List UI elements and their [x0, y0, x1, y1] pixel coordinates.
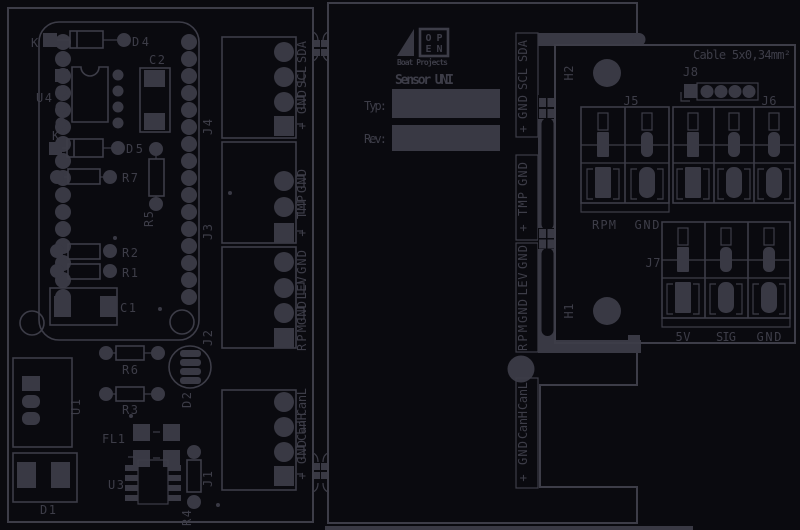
silk-ref-j4: J4 [201, 119, 215, 135]
logo-triangle-icon [397, 29, 414, 56]
resistor-r6: R6 [99, 346, 165, 377]
board-title: Sensor UNI [395, 73, 454, 88]
pin-label: SCL [295, 66, 309, 88]
rev-label: Rev: [364, 132, 387, 146]
silk-ref-j8: J8 [683, 65, 698, 79]
edge-label: TMP [516, 192, 530, 216]
connector-j4: J4 SDA SCL GND + [201, 37, 309, 138]
edge-label: + [516, 474, 530, 481]
pin-label: SDA [295, 40, 309, 63]
typ-label: Typ: [364, 99, 387, 113]
silk-ref-c2: C2 [149, 53, 165, 67]
silk-ref-d5: D5 [126, 142, 143, 156]
silk-ref-h1: H1 [562, 304, 576, 319]
pcb-panel: K D4 C2 U4 K [0, 0, 800, 530]
pin-label: GND [295, 169, 309, 193]
ic-u4: U4 [36, 67, 124, 129]
edge-label: CanL [516, 382, 530, 410]
silk-ref-j1: J1 [201, 471, 215, 487]
right-board: Cable 5x0,34mm² H2 H1 J8 J5 [555, 45, 795, 344]
silk-ref-u3: U3 [108, 478, 124, 492]
silk-ref-r5: R5 [142, 211, 156, 227]
connector-j1: J1 CanL CanH GND + [201, 388, 309, 490]
resistor-r3: R3 [99, 387, 165, 417]
edge-label: RPM [516, 325, 530, 351]
pin-label: + [295, 122, 309, 129]
connector-j5: J5 RPM GND [581, 94, 669, 232]
logo-subtitle: Boat Projects [397, 57, 448, 67]
pin-label: GND [295, 250, 309, 274]
diode-d2: D2 [169, 346, 211, 408]
silk-ref-r7: R7 [122, 171, 138, 185]
mount-hole-h2: H2 [562, 59, 621, 87]
rev-value-box [392, 125, 500, 151]
silk-ref-d2: D2 [180, 392, 194, 408]
pin-label: RPM [295, 325, 309, 351]
silk-ref-j6: J6 [762, 94, 777, 108]
edge-label: GND [516, 245, 530, 269]
ic-u1: U1 [13, 358, 83, 447]
connector-j8: J8 [681, 65, 758, 101]
logo-text-top: OP [426, 33, 443, 44]
silk-ref-j2: J2 [201, 330, 215, 346]
rev-field: Rev: [364, 125, 500, 151]
terminal-label: SIG [716, 330, 736, 344]
connector-j2: J2 GND LEV GND RPM [201, 247, 309, 351]
pin-label: TMP [295, 195, 309, 219]
silk-ref-r6: R6 [122, 363, 138, 377]
edge-label: GND [516, 95, 530, 119]
silk-ref-u1: U1 [69, 399, 83, 415]
pin-label: LEV [295, 277, 309, 300]
edge-label: + [516, 125, 530, 132]
logo-box [420, 29, 448, 56]
logo-text-bottom: EN [426, 44, 443, 55]
silk-ref-d4: D4 [132, 35, 149, 49]
mount-hole-h1: H1 [562, 297, 621, 325]
pin-label: GND [295, 301, 309, 325]
connector-j7: J7 5V SIG GND [646, 222, 791, 344]
silk-ref-u4: U4 [36, 91, 52, 105]
silk-ref-j3: J3 [201, 224, 215, 240]
left-board: K D4 C2 U4 K [8, 8, 313, 526]
mousebite-tab-bottom [313, 453, 328, 492]
edge-group-tmp: GND TMP + [516, 155, 538, 240]
edge-label: GND [516, 441, 530, 465]
cathode-mark-label: K [31, 36, 39, 50]
module-mount-hole-left [20, 311, 44, 335]
mousebite-tab-top [313, 32, 328, 61]
module-pad-column-right [181, 34, 197, 305]
silk-ref-r1: R1 [122, 266, 138, 280]
module-mount-hole-right [170, 310, 194, 334]
connector-j6: J6 [673, 94, 795, 203]
silk-ref-j7: J7 [646, 256, 661, 270]
silk-ref-d1: D1 [40, 503, 56, 517]
pin-label: + [295, 472, 309, 479]
edge-label: GND [516, 299, 530, 323]
pin-label: CanH [295, 413, 309, 441]
edge-group-can: CanL CanH GND + [516, 378, 538, 488]
edge-label: SCL [516, 68, 530, 90]
resistor-r5: R5 [142, 142, 164, 227]
silk-ref-fl1: FL1 [102, 432, 125, 446]
edge-label: + [516, 224, 530, 231]
capacitor-c2: C2 [140, 53, 170, 132]
terminal-label: GND [635, 218, 660, 232]
pin-label: + [295, 229, 309, 236]
cathode-mark-label: K [52, 129, 60, 143]
diode-d1: D1 [13, 453, 77, 517]
typ-value-box [392, 89, 500, 118]
edge-label: GND [516, 162, 530, 186]
panel-rail-bottom [325, 526, 693, 530]
terminal-label: GND [757, 330, 782, 344]
terminal-label: 5V [676, 330, 691, 344]
pin-label: GND [295, 90, 309, 114]
cable-note: Cable 5x0,34mm² [693, 48, 791, 62]
pin-label: CanL [295, 388, 309, 416]
typ-field: Typ: [364, 89, 500, 118]
terminal-label: RPM [592, 218, 616, 232]
edge-group-rpm-lev: GND LEV GND RPM [516, 243, 538, 352]
edge-label: SDA [516, 39, 530, 62]
edge-label: LEV [516, 273, 530, 296]
silk-ref-c1: C1 [120, 301, 136, 315]
silk-ref-r4: R4 [180, 510, 194, 526]
connector-j3: J3 GND TMP + [201, 142, 309, 243]
edge-label: CanH [516, 411, 530, 439]
silk-ref-r2: R2 [122, 246, 138, 260]
resistor-r4: R4 [180, 445, 201, 526]
open-boat-projects-logo: OP EN Boat Projects [397, 29, 448, 67]
diode-d4: K D4 [31, 31, 149, 50]
silk-ref-h2: H2 [562, 66, 576, 81]
silk-ref-j5: J5 [624, 94, 639, 108]
middle-board-outline [328, 3, 637, 523]
edge-group-i2c: SDA SCL GND + [516, 33, 538, 137]
pin-label: GND [295, 440, 309, 464]
